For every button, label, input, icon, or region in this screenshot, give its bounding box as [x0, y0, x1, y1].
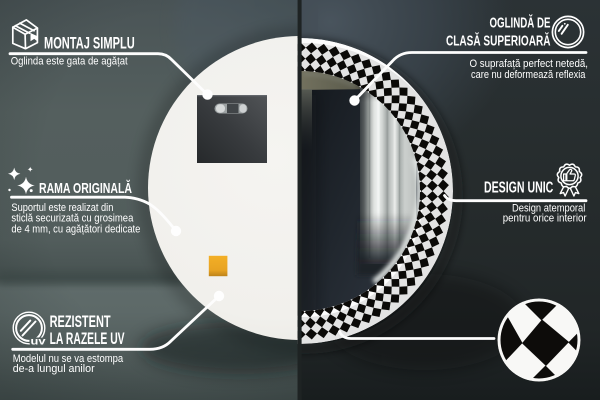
svg-text:uv: uv — [31, 336, 46, 348]
svg-text:RAMA ORIGINALĂ: RAMA ORIGINALĂ — [39, 180, 132, 197]
svg-text:de-a lungul anilor: de-a lungul anilor — [13, 363, 95, 375]
svg-text:pentru orice interior: pentru orice interior — [503, 212, 587, 224]
svg-text:CLASĂ SUPERIOARĂ: CLASĂ SUPERIOARĂ — [446, 33, 551, 50]
svg-text:care nu deformează reflexia: care nu deformează reflexia — [471, 69, 586, 81]
svg-text:Oglinda este gata de agățat: Oglinda este gata de agățat — [11, 55, 128, 67]
svg-text:LA RAZELE UV: LA RAZELE UV — [50, 329, 125, 348]
svg-text:MONTAJ SIMPLU: MONTAJ SIMPLU — [44, 34, 135, 52]
svg-text:DESIGN UNIC: DESIGN UNIC — [484, 180, 554, 197]
svg-text:de 4 mm, cu agățători dedicate: de 4 mm, cu agățători dedicate — [11, 223, 140, 235]
svg-text:OGLINDĂ DE: OGLINDĂ DE — [490, 15, 551, 32]
